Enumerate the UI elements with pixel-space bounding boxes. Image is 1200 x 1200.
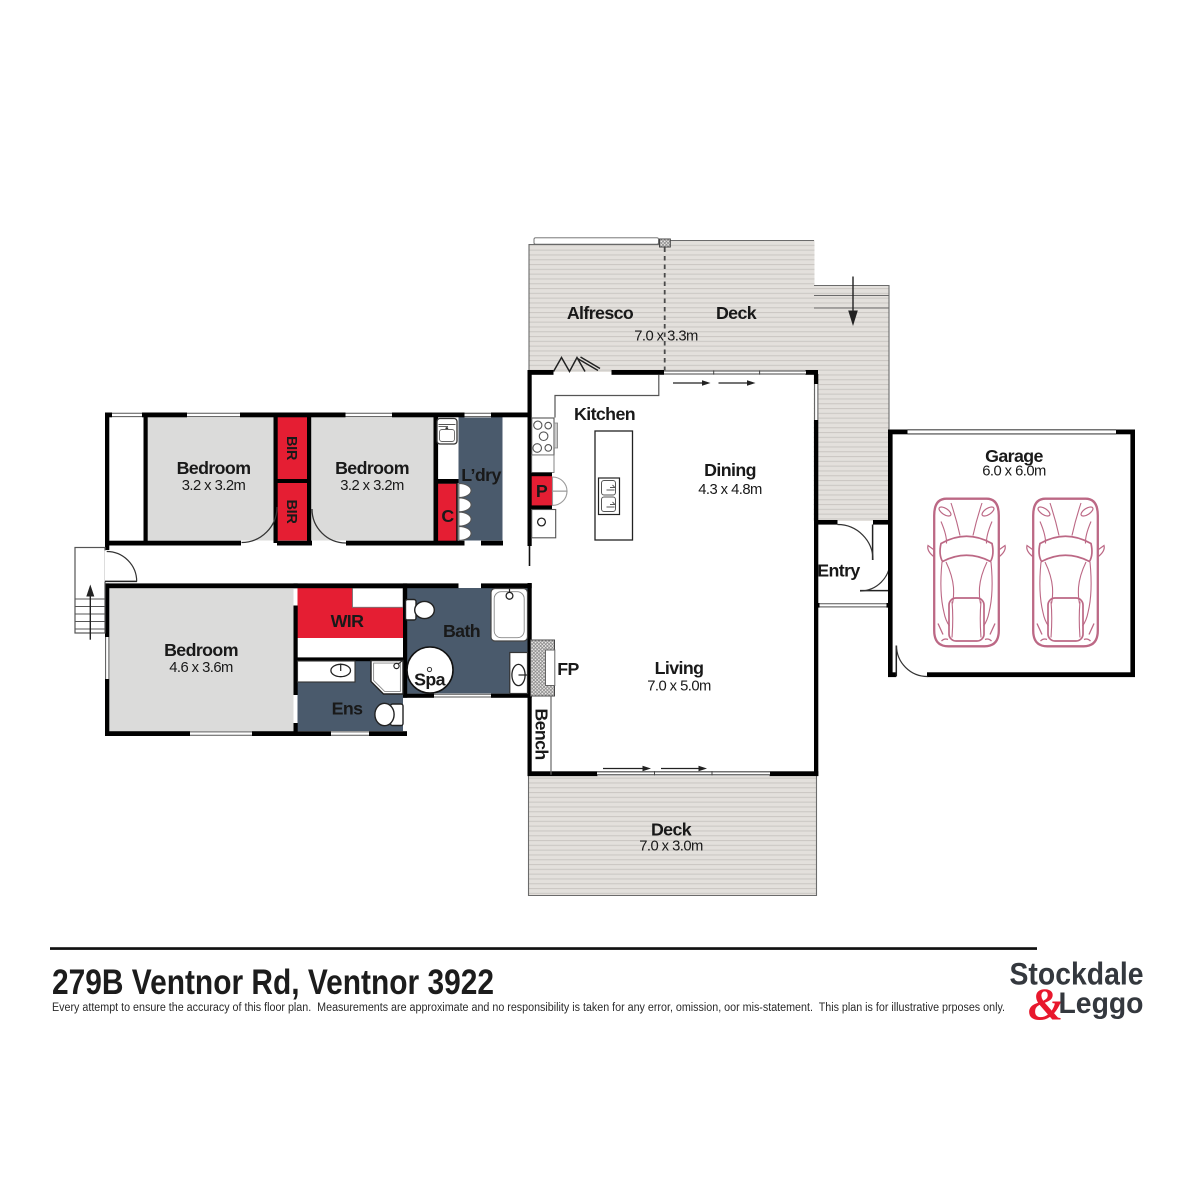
- svg-text:Bedroom: Bedroom: [164, 640, 238, 660]
- svg-text:Kitchen: Kitchen: [574, 404, 635, 424]
- svg-text:BIR: BIR: [283, 499, 299, 524]
- svg-text:Entry: Entry: [817, 561, 860, 581]
- svg-text:7.0 x 3.3m: 7.0 x 3.3m: [634, 329, 698, 345]
- svg-text:Alfresco: Alfresco: [567, 303, 634, 323]
- svg-text:4.3 x 4.8m: 4.3 x 4.8m: [698, 482, 762, 498]
- svg-text:Dining: Dining: [704, 460, 756, 480]
- svg-text:7.0 x 3.0m: 7.0 x 3.0m: [639, 839, 703, 855]
- svg-text:Bath: Bath: [443, 621, 480, 641]
- svg-text:Deck: Deck: [651, 820, 692, 840]
- svg-text:Living: Living: [655, 658, 704, 678]
- svg-text:BIR: BIR: [283, 436, 299, 461]
- svg-text:Every attempt to ensure the ac: Every attempt to ensure the accuracy of …: [52, 1002, 1005, 1014]
- svg-text:C: C: [441, 506, 454, 526]
- svg-text:Bedroom: Bedroom: [177, 458, 251, 478]
- svg-text:6.0 x 6.0m: 6.0 x 6.0m: [982, 464, 1046, 480]
- svg-text:Leggo: Leggo: [1059, 987, 1144, 1020]
- svg-text:Bench: Bench: [531, 708, 551, 759]
- svg-text:Deck: Deck: [716, 303, 757, 323]
- svg-text:L’dry: L’dry: [461, 465, 501, 485]
- svg-text:Spa: Spa: [414, 670, 446, 690]
- svg-text:FP: FP: [557, 659, 579, 679]
- svg-text:Ens: Ens: [332, 699, 364, 719]
- svg-text:P: P: [536, 481, 548, 501]
- svg-text:WIR: WIR: [331, 611, 365, 631]
- svg-text:279B Ventnor Rd, Ventnor 3922: 279B Ventnor Rd, Ventnor 3922: [52, 963, 494, 1002]
- svg-text:7.0 x 5.0m: 7.0 x 5.0m: [647, 679, 711, 695]
- svg-text:3.2 x 3.2m: 3.2 x 3.2m: [182, 478, 246, 494]
- svg-text:Bedroom: Bedroom: [335, 458, 409, 478]
- svg-text:3.2 x 3.2m: 3.2 x 3.2m: [340, 478, 404, 494]
- svg-text:4.6 x 3.6m: 4.6 x 3.6m: [169, 660, 233, 676]
